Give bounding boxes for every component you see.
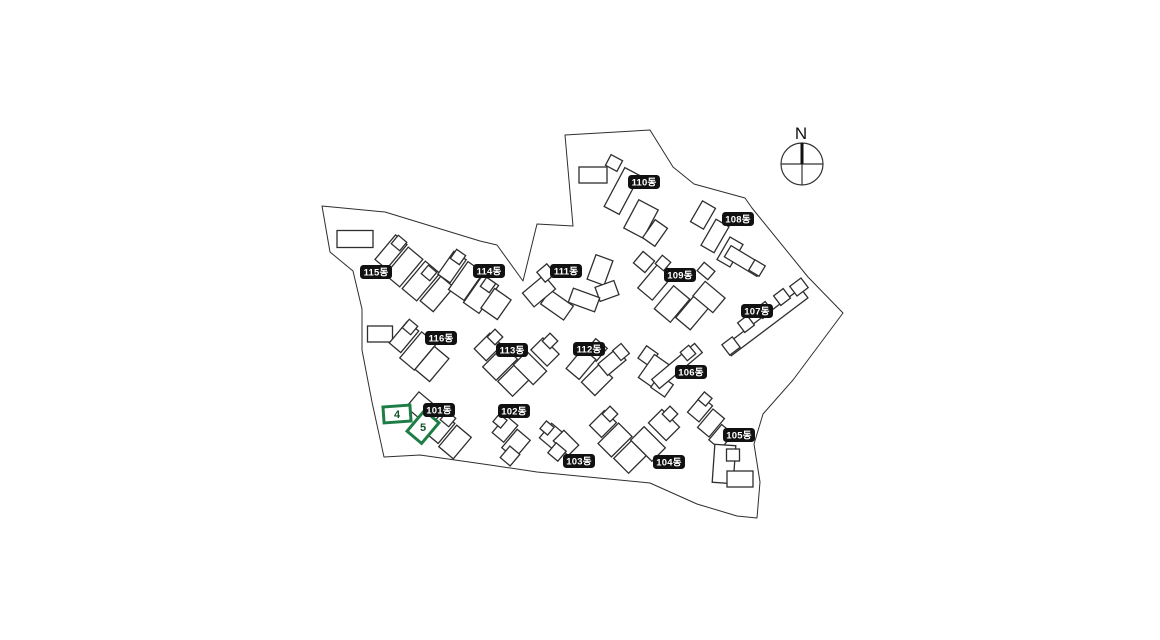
building-badge-label: 104동 xyxy=(656,458,681,469)
building-115[interactable] xyxy=(337,231,454,312)
building-110[interactable] xyxy=(579,155,667,247)
building-badge-104[interactable]: 104동 xyxy=(653,455,685,469)
building-badge-108[interactable]: 108동 xyxy=(722,212,754,226)
building-109[interactable] xyxy=(633,251,725,329)
building-block xyxy=(568,288,599,312)
building-badge-label: 106동 xyxy=(678,368,703,379)
building-badge-105[interactable]: 105동 xyxy=(723,428,755,442)
building-block xyxy=(579,167,607,183)
building-badge-111[interactable]: 111동 xyxy=(550,264,582,278)
building-block xyxy=(790,278,808,296)
building-block xyxy=(368,326,393,342)
building-badge-label: 108동 xyxy=(725,215,750,226)
building-badge-label: 102동 xyxy=(501,407,526,418)
building-badge-label: 105동 xyxy=(726,431,751,442)
building-badge-label: 111동 xyxy=(554,267,578,278)
building-badge-label: 107동 xyxy=(744,307,769,318)
building-badge-106[interactable]: 106동 xyxy=(675,365,707,379)
compass-north-label: N xyxy=(795,124,807,143)
building-badge-label: 113동 xyxy=(500,346,525,357)
building-116[interactable] xyxy=(368,319,449,381)
site-plan-page: 45110동108동115동114동111동109동107동116동113동11… xyxy=(0,0,1160,640)
highlighted-unit-4[interactable]: 4 xyxy=(383,405,411,423)
building-badge-label: 103동 xyxy=(566,457,591,468)
unit-number: 4 xyxy=(394,409,401,421)
building-113[interactable] xyxy=(474,329,559,396)
building-badge-113[interactable]: 113동 xyxy=(496,343,528,357)
building-badge-103[interactable]: 103동 xyxy=(563,454,595,468)
building-badge-label: 112동 xyxy=(577,345,602,356)
compass: N xyxy=(781,124,823,185)
building-badge-116[interactable]: 116동 xyxy=(425,331,457,345)
building-block xyxy=(697,262,715,279)
building-102[interactable] xyxy=(492,414,530,466)
building-block xyxy=(337,231,373,248)
building-badge-label: 114동 xyxy=(477,267,502,278)
building-badge-112[interactable]: 112동 xyxy=(573,342,605,356)
building-badge-label: 110동 xyxy=(632,178,657,189)
building-badge-label: 109동 xyxy=(667,271,692,282)
building-badge-label: 101동 xyxy=(426,406,451,417)
building-badge-102[interactable]: 102동 xyxy=(498,404,530,418)
site-plan-map[interactable]: 45110동108동115동114동111동109동107동116동113동11… xyxy=(0,0,1160,640)
building-badge-107[interactable]: 107동 xyxy=(741,304,773,318)
building-badge-110[interactable]: 110동 xyxy=(628,175,660,189)
building-badge-114[interactable]: 114동 xyxy=(473,264,505,278)
building-badge-label: 115동 xyxy=(364,268,389,279)
building-badge-115[interactable]: 115동 xyxy=(360,265,392,279)
building-block xyxy=(727,449,740,461)
building-badge-101[interactable]: 101동 xyxy=(423,403,455,417)
building-block xyxy=(605,155,622,172)
building-block xyxy=(587,255,613,286)
unit-number: 5 xyxy=(420,422,426,434)
building-block xyxy=(633,251,654,272)
building-block xyxy=(691,201,716,229)
building-badge-109[interactable]: 109동 xyxy=(664,268,696,282)
building-block xyxy=(727,471,753,487)
building-badge-label: 116동 xyxy=(429,334,454,345)
